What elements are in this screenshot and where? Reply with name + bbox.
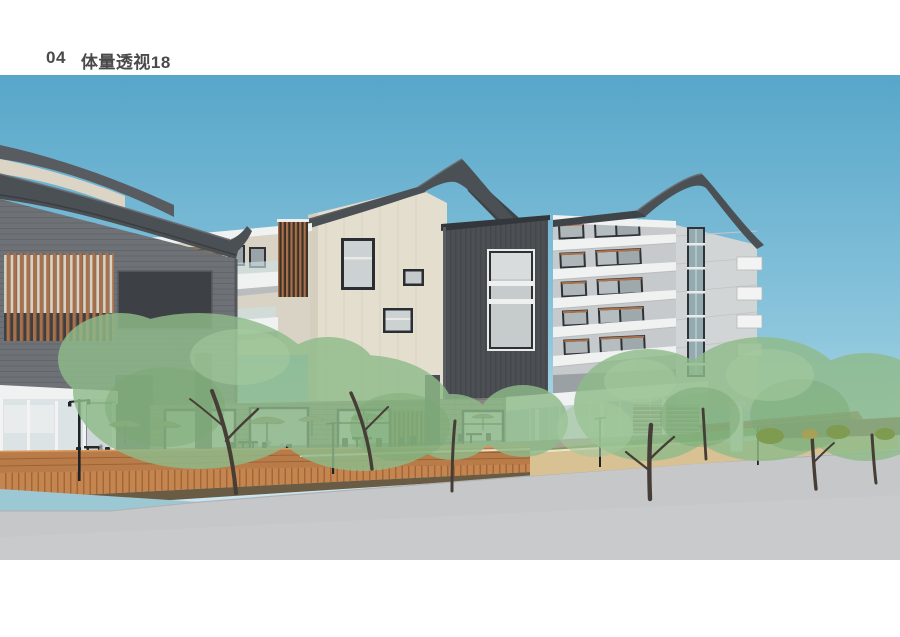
- tower-window: [487, 249, 535, 351]
- massing-perspective-svg: [0, 75, 900, 560]
- page-title-text: 体量透视18: [81, 48, 171, 73]
- page-title: 04 体量透视18: [46, 48, 171, 73]
- wood-fin-panel: [277, 219, 309, 297]
- architectural-rendering: [0, 75, 900, 560]
- page-title-number: 04: [46, 48, 66, 73]
